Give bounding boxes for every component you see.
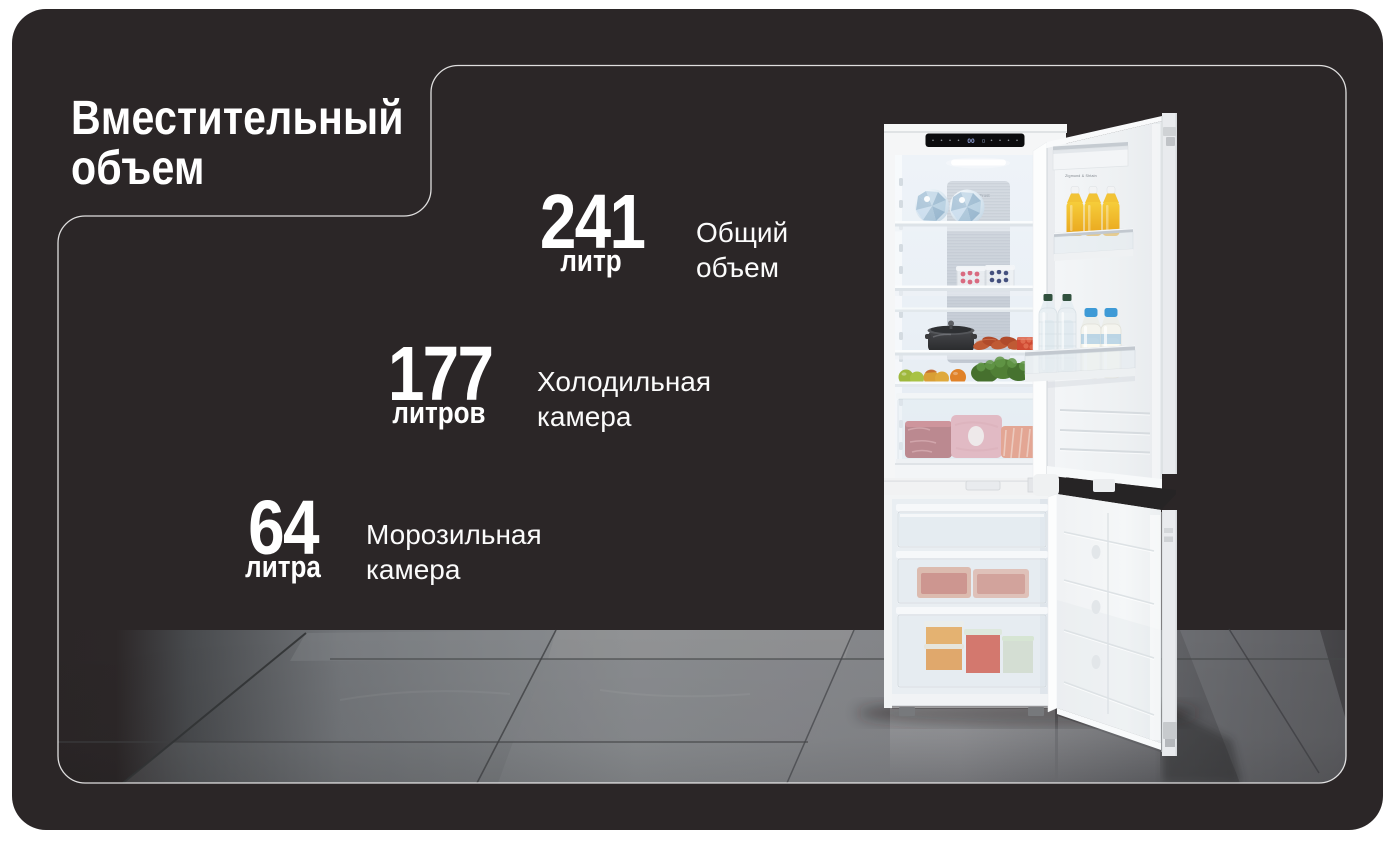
svg-text:00: 00 <box>967 138 975 145</box>
svg-text:0: 0 <box>982 139 985 145</box>
svg-text:Zigmund & Shtain: Zigmund & Shtain <box>1065 174 1097 178</box>
